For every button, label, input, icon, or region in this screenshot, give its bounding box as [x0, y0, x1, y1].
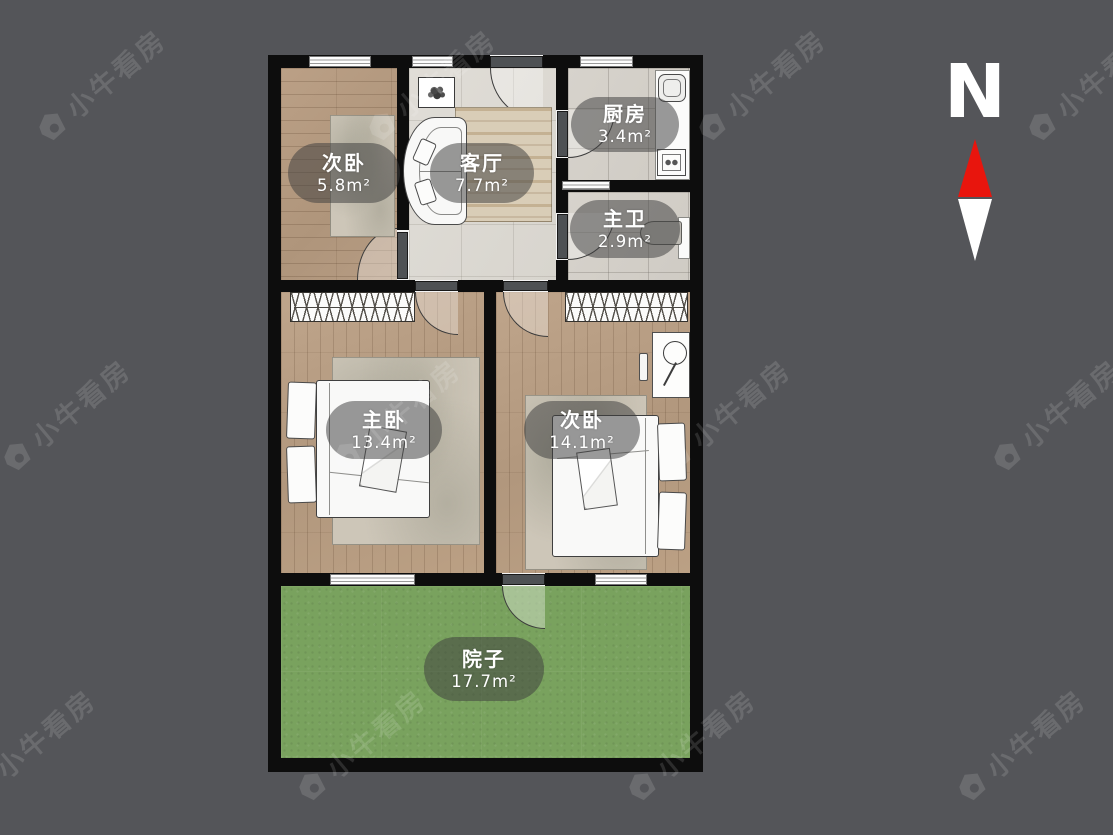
side-chair [639, 353, 648, 381]
bed-sheet-line [645, 418, 646, 554]
room-label-master-bedroom: 主卧 13.4m² [326, 401, 442, 459]
bull-logo-icon [984, 433, 1029, 478]
wardrobe-master-bedroom [290, 292, 415, 322]
room-name: 主卫 [603, 207, 647, 232]
room-area: 7.7m² [455, 176, 509, 196]
watermark: 小牛看房 [1017, 19, 1113, 151]
desk-chair-stem [663, 362, 677, 386]
bull-logo-icon [0, 763, 4, 808]
room-label-courtyard: 院子 17.7m² [424, 637, 544, 701]
room-label-living: 客厅 7.7m² [430, 143, 534, 203]
room-label-kitchen: 厨房 3.4m² [571, 97, 679, 152]
bedroom-top-door-leaf [397, 232, 408, 279]
window-secondary-bedroom-courtyard [595, 574, 647, 585]
room-name: 主卧 [362, 408, 406, 433]
floorplan: 次卧 5.8m² 客厅 7.7m² 厨房 3.4m² 主卫 2.9m² 主卧 1… [268, 55, 703, 772]
watermark-text: 小牛看房 [0, 679, 103, 786]
pillow-secondary [657, 423, 687, 482]
room-area: 3.4m² [598, 127, 652, 147]
room-area: 17.7m² [451, 672, 516, 692]
watermark-text: 小牛看房 [1011, 349, 1113, 456]
kitchen-door-leaf [557, 111, 568, 157]
watermark-text: 小牛看房 [976, 679, 1093, 786]
entry-door-leaf [490, 56, 543, 68]
watermark-text: 小牛看房 [56, 19, 173, 126]
bull-logo-icon [0, 433, 39, 478]
stove [657, 149, 686, 176]
room-name: 厨房 [603, 102, 647, 127]
courtyard-door-leaf [502, 574, 545, 585]
plant-icon [422, 81, 451, 104]
watermark: 小牛看房 [0, 679, 103, 811]
bull-logo-icon [949, 763, 994, 808]
watermark-text: 小牛看房 [716, 19, 833, 126]
room-area: 13.4m² [351, 433, 416, 453]
room-area: 2.9m² [598, 232, 652, 252]
wardrobe-secondary-bedroom [565, 292, 688, 322]
room-label-secondary-bedroom: 次卧 14.1m² [524, 401, 640, 459]
kitchen-sink [658, 74, 686, 102]
bed-sheet-line [329, 383, 330, 515]
room-label-master-bath: 主卫 2.9m² [570, 200, 680, 258]
window-kitchen-bath-divider [562, 181, 610, 190]
watermark: 小牛看房 [0, 349, 138, 481]
room-area: 14.1m² [549, 433, 614, 453]
window-master-bedroom-courtyard [330, 574, 415, 585]
bath-door-leaf [557, 214, 568, 259]
plant-box [418, 77, 455, 108]
bull-logo-icon [1019, 103, 1064, 148]
pillow-secondary [657, 492, 687, 551]
screenshot-background: 次卧 5.8m² 客厅 7.7m² 厨房 3.4m² 主卫 2.9m² 主卧 1… [0, 0, 1113, 835]
watermark: 小牛看房 [687, 19, 834, 151]
watermark: 小牛看房 [982, 349, 1113, 481]
room-name: 客厅 [460, 151, 504, 176]
room-name: 次卧 [560, 408, 604, 433]
room-label-secondary-bedroom-top: 次卧 5.8m² [288, 143, 400, 203]
watermark: 小牛看房 [27, 19, 174, 151]
room-name: 院子 [462, 647, 506, 672]
north-arrow-icon [955, 135, 995, 265]
bull-logo-icon [29, 103, 74, 148]
window-top-living [412, 56, 453, 67]
watermark-text: 小牛看房 [21, 349, 138, 456]
room-name: 次卧 [322, 151, 366, 176]
window-top-bedroom [309, 56, 371, 67]
room-area: 5.8m² [317, 176, 371, 196]
desk [652, 332, 690, 398]
north-label: N [930, 55, 1020, 129]
compass: N [930, 55, 1020, 270]
window-top-kitchen [580, 56, 633, 67]
watermark: 小牛看房 [947, 679, 1094, 811]
secondary-bedroom-door-leaf [503, 281, 548, 291]
pillow-master [286, 382, 317, 440]
watermark-text: 小牛看房 [1046, 19, 1113, 126]
pillow-master [286, 446, 317, 504]
master-bedroom-door-leaf [415, 281, 458, 291]
